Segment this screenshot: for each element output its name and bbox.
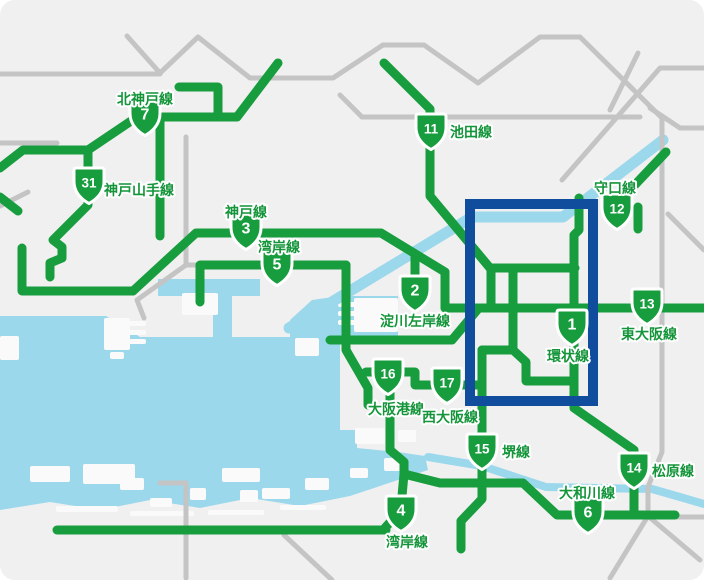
route-number: 4	[397, 503, 406, 520]
island	[30, 466, 70, 482]
island	[56, 506, 118, 512]
route-label-17: 西大阪線	[422, 409, 478, 425]
route-number: 17	[439, 376, 454, 391]
route-number: 3	[242, 221, 251, 238]
island	[240, 490, 258, 502]
route-label-2: 淀川左岸線	[380, 313, 450, 329]
route-badge-31[interactable]: 31	[74, 168, 104, 204]
route-label-31: 神戸山手線	[104, 182, 174, 198]
route-label-13: 東大阪線	[621, 326, 677, 342]
route-label-12: 守口線	[594, 180, 636, 196]
island	[398, 430, 416, 442]
route-label-15: 堺線	[502, 444, 530, 460]
route-label-7: 北神戸線	[117, 91, 173, 107]
road-line	[340, 95, 362, 117]
island	[0, 336, 19, 360]
island	[280, 505, 326, 510]
route-badge-14[interactable]: 14	[619, 453, 649, 489]
route-label-6: 大和川線	[559, 485, 615, 501]
route-badge-2[interactable]: 2	[400, 276, 430, 312]
road-line	[650, 108, 704, 128]
route-line	[88, 117, 137, 150]
island	[110, 352, 124, 359]
island	[295, 338, 319, 356]
map-canvas: 12345671112131415161731 環状線淀川左岸線神戸線湾岸線湾岸…	[0, 0, 704, 580]
route-badge-12[interactable]: 12	[602, 194, 632, 230]
route-number: 31	[81, 176, 97, 191]
route-label-1: 環状線	[547, 348, 589, 364]
route-number: 16	[380, 367, 396, 382]
route-number: 5	[273, 257, 282, 274]
route-number: 1	[568, 317, 577, 334]
route-number: 13	[639, 297, 655, 312]
route-badge-13[interactable]: 13	[632, 289, 662, 325]
route-badge-6[interactable]: 6	[573, 498, 603, 534]
island	[350, 468, 368, 478]
route-number: 7	[141, 107, 150, 124]
road-line	[648, 516, 700, 560]
route-number: 6	[584, 505, 593, 522]
route-number: 14	[626, 461, 642, 476]
road-line	[668, 214, 704, 250]
island	[305, 478, 329, 490]
route-line	[22, 248, 133, 291]
route-number: 15	[474, 442, 490, 457]
island	[150, 498, 172, 507]
route-label-16: 大阪港線	[368, 401, 424, 417]
island	[128, 330, 146, 335]
route-label-3: 神戸線	[225, 204, 267, 220]
route-line	[179, 87, 218, 113]
island	[208, 510, 264, 515]
route-badge-16[interactable]: 16	[373, 359, 403, 395]
route-badge-5[interactable]: 5	[262, 250, 292, 286]
expressway-network-map: 12345671112131415161731 環状線淀川左岸線神戸線湾岸線湾岸…	[0, 0, 704, 580]
road-line	[610, 516, 648, 578]
route-label-5: 湾岸線	[258, 239, 300, 255]
island	[262, 488, 290, 499]
route-label-11: 池田線	[450, 124, 492, 140]
island	[128, 321, 146, 326]
island	[355, 428, 385, 444]
route-line	[0, 150, 88, 168]
island	[120, 478, 144, 490]
road-line	[127, 36, 160, 73]
route-badge-11[interactable]: 11	[416, 114, 446, 150]
island	[222, 468, 260, 482]
route-badge-17[interactable]: 17	[432, 368, 462, 404]
island	[104, 318, 130, 350]
route-number: 2	[411, 283, 420, 300]
route-badge-1[interactable]: 1	[557, 310, 587, 346]
road-line	[284, 535, 332, 580]
route-label-4: 湾岸線	[386, 534, 428, 550]
route-number: 12	[609, 202, 624, 217]
route-number: 11	[424, 122, 439, 137]
island	[128, 339, 146, 344]
route-label-14: 松原線	[652, 463, 694, 479]
island	[190, 488, 206, 500]
